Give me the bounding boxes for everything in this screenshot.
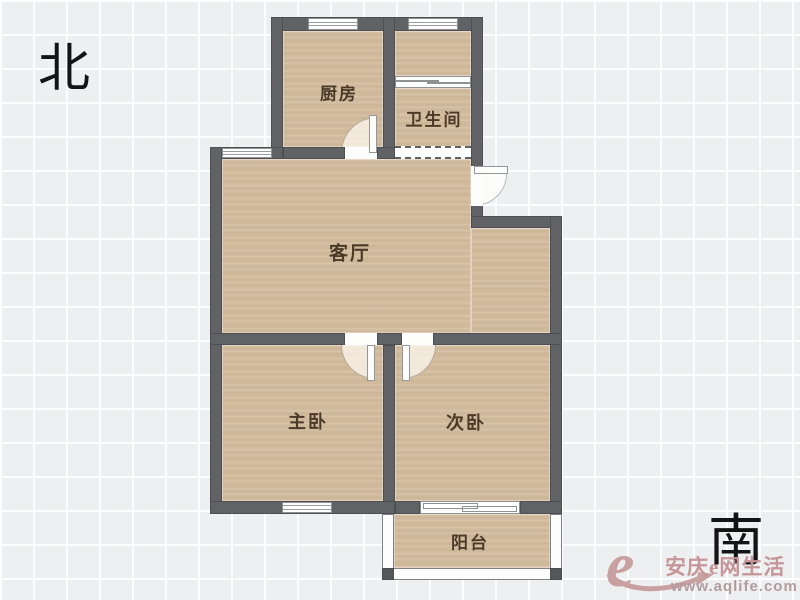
- wall-left: [210, 147, 222, 513]
- master-door-leaf: [367, 345, 375, 381]
- wall-mid-right: [433, 333, 562, 345]
- label-kitchen: 厨房: [320, 80, 358, 105]
- label-living-room: 客厅: [329, 239, 371, 266]
- wall-bottom-second-left: [395, 501, 420, 514]
- bathroom-divider-window: [395, 76, 471, 88]
- balcony-rail-left: [382, 514, 394, 570]
- wall-kitchen-bathroom-divider: [383, 17, 395, 159]
- wall-bottom-second-right: [520, 501, 562, 514]
- wall-right: [550, 216, 562, 513]
- living-room-window: [222, 148, 272, 158]
- kitchen-window: [308, 18, 358, 30]
- watermark-site-name: 安庆e网生活: [665, 551, 785, 581]
- label-balcony: 阳台: [451, 529, 489, 554]
- master-door-opening: [345, 333, 377, 345]
- entry-door-leaf: [474, 166, 508, 174]
- floor-bathroom-upper: [395, 31, 471, 76]
- wall-kitchen-bottom-stub: [377, 147, 395, 159]
- bathroom-sliding-opening: [395, 146, 471, 159]
- wall-mid-left: [210, 333, 345, 345]
- bathroom-window: [408, 18, 458, 30]
- floor-living-room-right: [471, 228, 550, 333]
- kitchen-door-leaf: [369, 115, 377, 153]
- second-door-opening: [402, 333, 433, 345]
- sliding-door-panel-right: [462, 506, 517, 512]
- floor-plan-canvas: 厨房 卫生间 客厅 主卧 次卧 阳台 北 南 e 安庆e网生活 www.aqli…: [0, 0, 800, 600]
- wall-bedroom-divider: [383, 345, 395, 513]
- wall-kitchen-bottom: [283, 147, 345, 159]
- label-bathroom: 卫生间: [406, 106, 463, 131]
- master-bedroom-window: [282, 502, 332, 513]
- compass-north: 北: [38, 26, 90, 101]
- balcony-rail-right: [550, 514, 562, 570]
- watermark-url: www.aqlife.com: [671, 578, 798, 595]
- wall-mid-stub: [377, 333, 402, 345]
- label-master-bedroom: 主卧: [288, 408, 328, 434]
- wall-bathroom-right: [471, 17, 483, 168]
- balcony-post-right: [550, 568, 562, 580]
- second-door-leaf: [402, 345, 410, 381]
- wall-entry-horizontal: [471, 216, 562, 228]
- label-second-bedroom: 次卧: [446, 409, 486, 435]
- balcony-post-left: [382, 568, 394, 580]
- balcony-sliding-door: [420, 501, 520, 514]
- wall-kitchen-left: [271, 17, 283, 159]
- balcony-rail-bottom: [382, 568, 562, 580]
